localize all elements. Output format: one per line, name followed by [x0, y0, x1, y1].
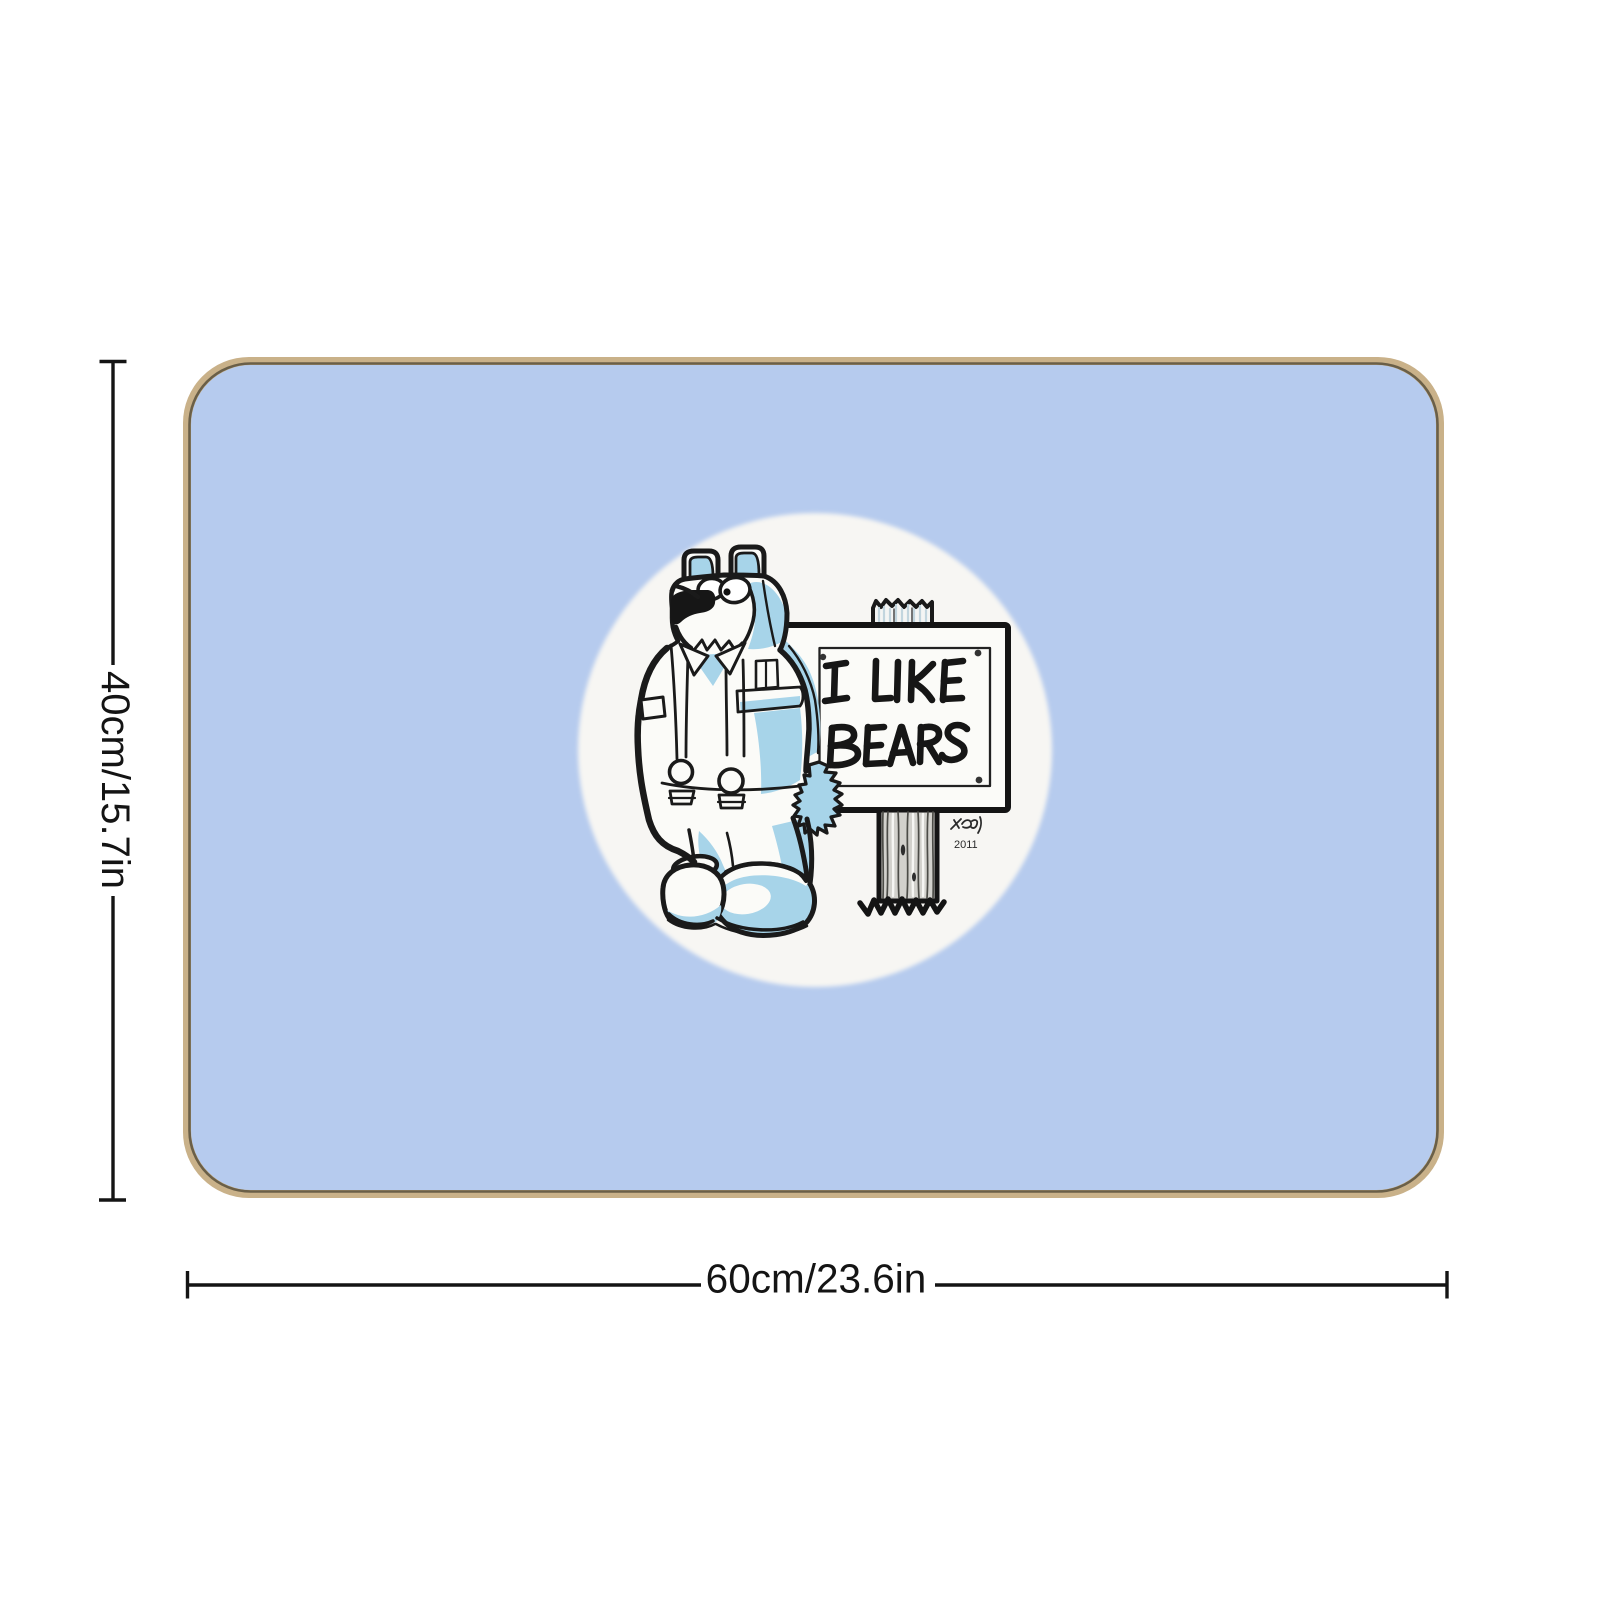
svg-text:60cm/23.6in: 60cm/23.6in	[706, 1256, 927, 1302]
svg-text:40cm/15.7in: 40cm/15.7in	[93, 671, 137, 889]
svg-text:2011: 2011	[954, 839, 978, 851]
